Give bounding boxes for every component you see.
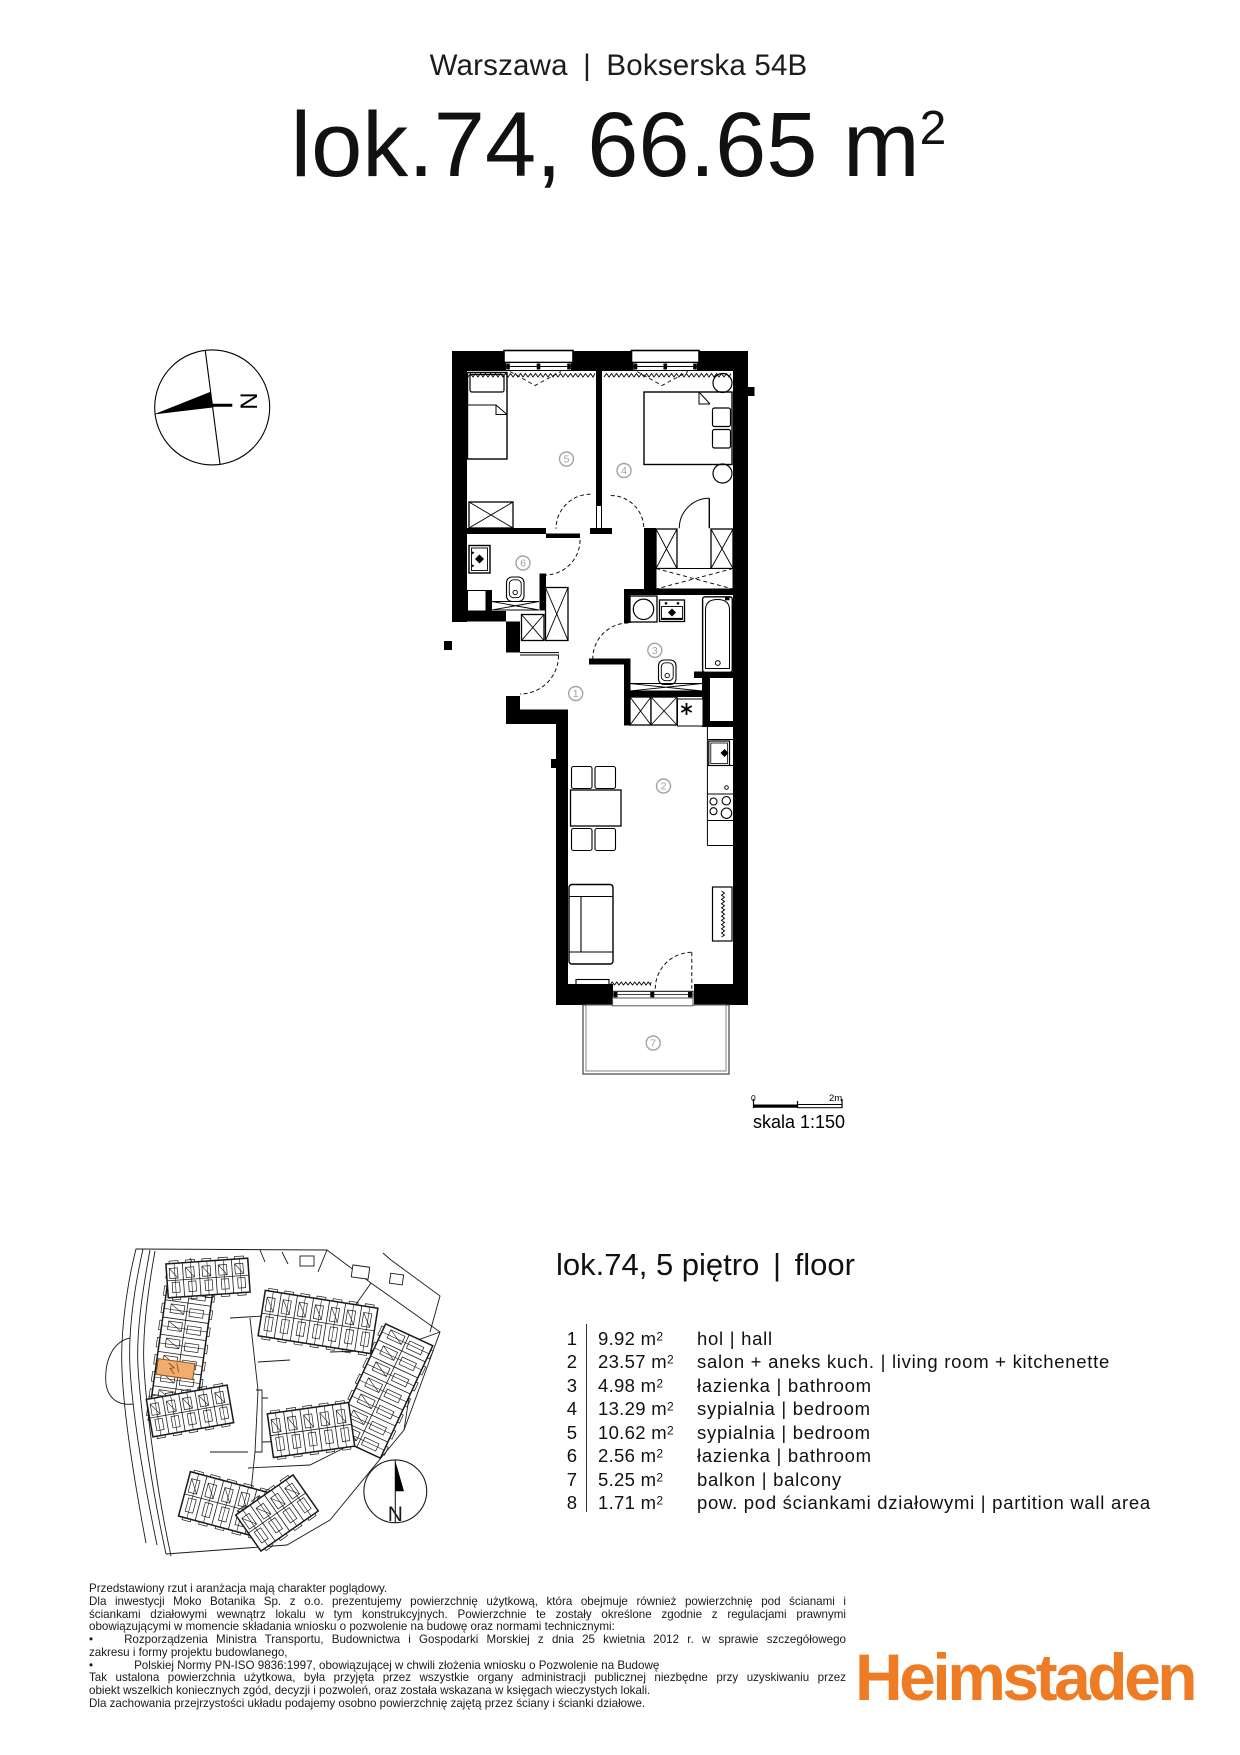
svg-text:2m: 2m bbox=[829, 1093, 842, 1104]
svg-text:6: 6 bbox=[520, 558, 526, 570]
svg-text:5: 5 bbox=[564, 454, 570, 466]
svg-text:3: 3 bbox=[652, 645, 658, 657]
svg-text:1: 1 bbox=[573, 688, 579, 700]
svg-text:N: N bbox=[235, 392, 262, 409]
svg-text:skala 1:150: skala 1:150 bbox=[753, 1112, 845, 1132]
svg-text:N: N bbox=[388, 1503, 403, 1526]
svg-text:2: 2 bbox=[661, 781, 667, 793]
svg-text:0: 0 bbox=[751, 1093, 756, 1103]
svg-text:4: 4 bbox=[621, 465, 627, 477]
svg-text:7: 7 bbox=[650, 1038, 656, 1050]
